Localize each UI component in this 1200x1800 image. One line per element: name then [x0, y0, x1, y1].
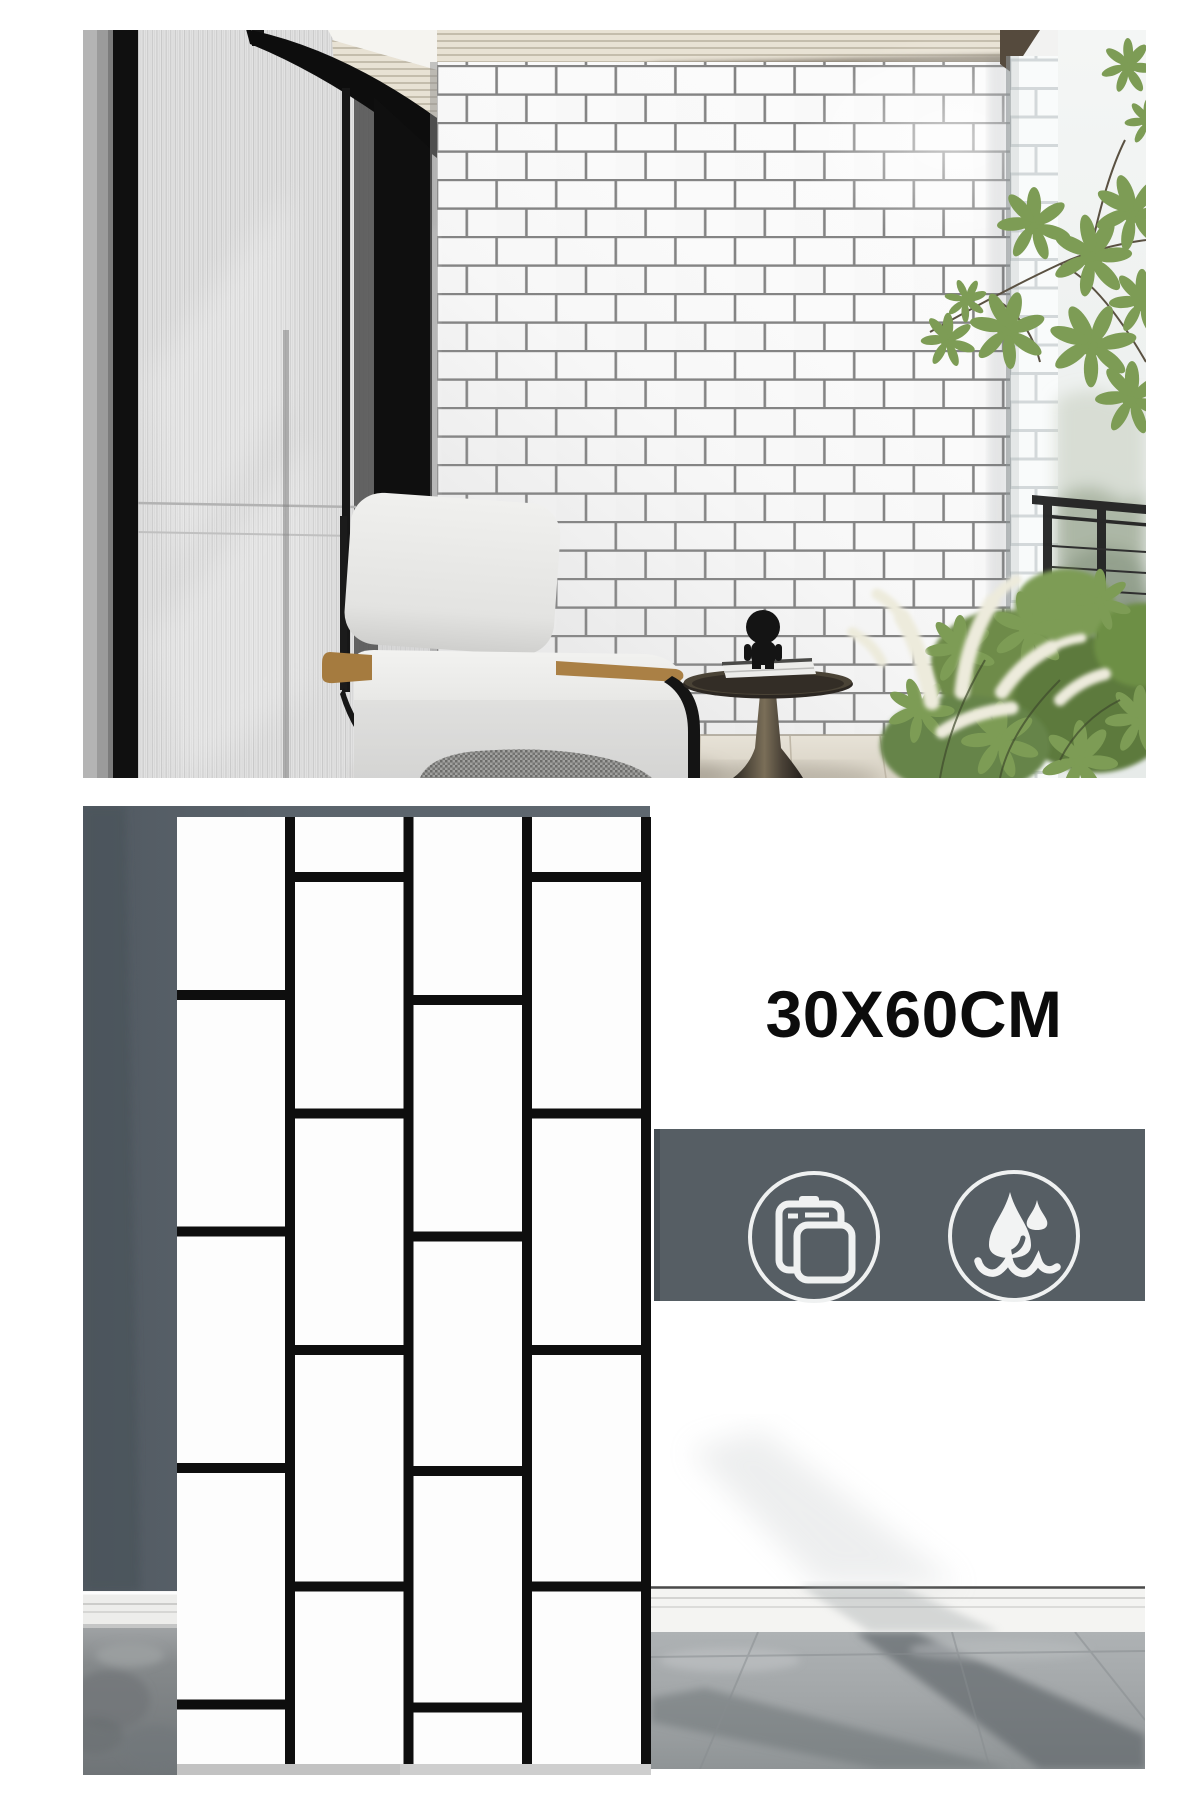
svg-text:30X60CM: 30X60CM: [766, 977, 1063, 1051]
